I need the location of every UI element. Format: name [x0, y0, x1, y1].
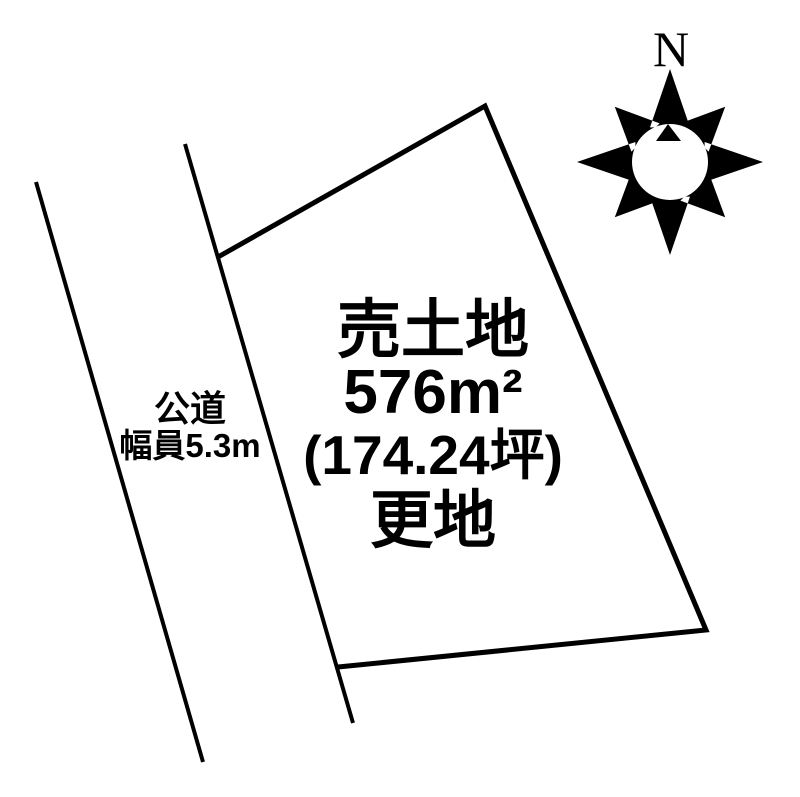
compass-north-label: N: [653, 24, 689, 74]
road-width-text: 幅員5.3m: [119, 428, 260, 463]
plot-area-sqm-text: 576m²: [303, 362, 563, 424]
plot-area-tsubo-text: (174.24坪): [303, 424, 563, 486]
road-label: 公道 幅員5.3m: [119, 389, 260, 463]
road-name-text: 公道: [119, 389, 260, 428]
plot-condition-text: 更地: [303, 490, 563, 553]
site-plan-diagram: N 公道 幅員5.3m 売土地 576m² (174.24坪) 更地: [0, 0, 800, 797]
plot-title-text: 売土地: [303, 299, 563, 362]
plot-label: 売土地 576m² (174.24坪) 更地: [303, 299, 563, 553]
road-left-line: [36, 182, 203, 762]
compass-rose: [577, 69, 763, 255]
